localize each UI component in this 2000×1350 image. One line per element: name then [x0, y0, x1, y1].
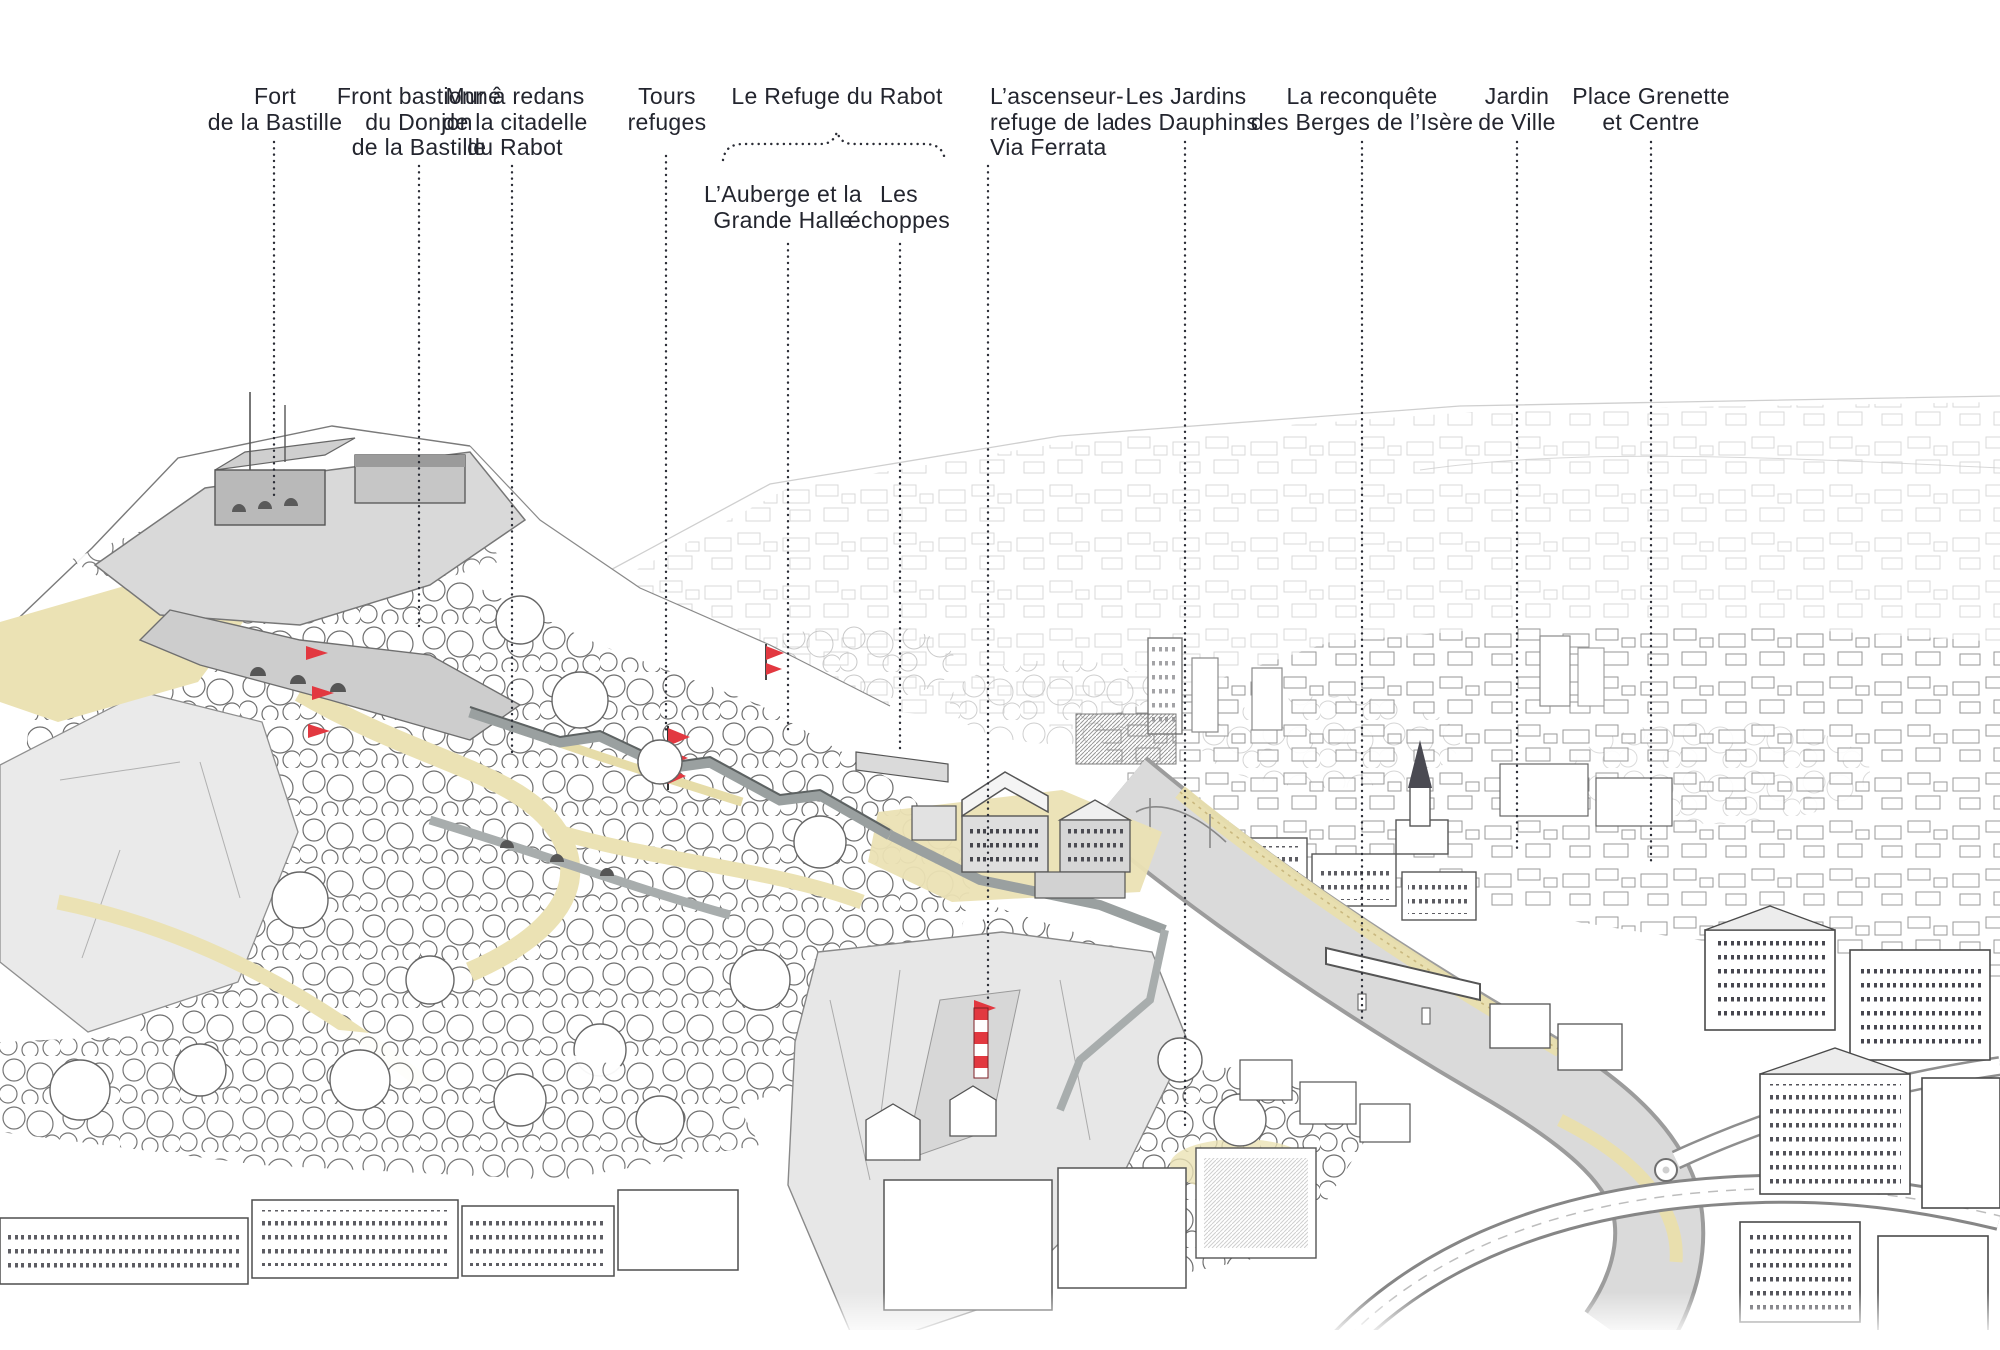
label-line: Fort [208, 84, 343, 110]
label-les-echoppes: Les échoppes [848, 182, 950, 233]
refuge-rabot-brace [723, 132, 945, 160]
label-line: et Centre [1572, 110, 1730, 136]
label-fort-de-la-bastille: Fort de la Bastille [208, 84, 343, 135]
label-auberge-grande-halle: L’Auberge et la Grande Halle [704, 182, 862, 233]
label-line: refuge de la [990, 110, 1124, 136]
label-line: Via Ferrata [990, 135, 1124, 161]
label-line: La reconquête [1251, 84, 1473, 110]
label-mur-a-redans: Mur à redans de la citadelle du Rabot [442, 84, 587, 161]
label-line: Mur à redans [442, 84, 587, 110]
label-place-grenette: Place Grenette et Centre [1572, 84, 1730, 135]
label-line: Les [848, 182, 950, 208]
label-line: du Rabot [442, 135, 587, 161]
label-line: Place Grenette [1572, 84, 1730, 110]
label-jardins-des-dauphins: Les Jardins des Dauphins [1114, 84, 1258, 135]
leader-overlay [0, 0, 2000, 1350]
label-line: de la citadelle [442, 110, 587, 136]
label-line: Tours [628, 84, 707, 110]
label-line: Le Refuge du Rabot [731, 84, 942, 110]
label-reconquete-berges: La reconquête des Berges de l’Isère [1251, 84, 1473, 135]
label-line: de la Bastille [208, 110, 343, 136]
label-jardin-de-ville: Jardin de Ville [1478, 84, 1555, 135]
label-line: Grande Halle [704, 208, 862, 234]
label-tours-refuges: Tours refuges [628, 84, 707, 135]
label-line: des Dauphins [1114, 110, 1258, 136]
label-line: refuges [628, 110, 707, 136]
label-line: Les Jardins [1114, 84, 1258, 110]
label-line: L’ascenseur- [990, 84, 1124, 110]
label-le-refuge-du-rabot: Le Refuge du Rabot [731, 84, 942, 110]
annotated-panorama: Fort de la Bastille Front bastionné du D… [0, 0, 2000, 1350]
label-line: échoppes [848, 208, 950, 234]
label-line: des Berges de l’Isère [1251, 110, 1473, 136]
label-line: de Ville [1478, 110, 1555, 136]
label-ascenseur-via-ferrata: L’ascenseur- refuge de la Via Ferrata [990, 84, 1124, 161]
label-line: L’Auberge et la [704, 182, 862, 208]
label-line: Jardin [1478, 84, 1555, 110]
